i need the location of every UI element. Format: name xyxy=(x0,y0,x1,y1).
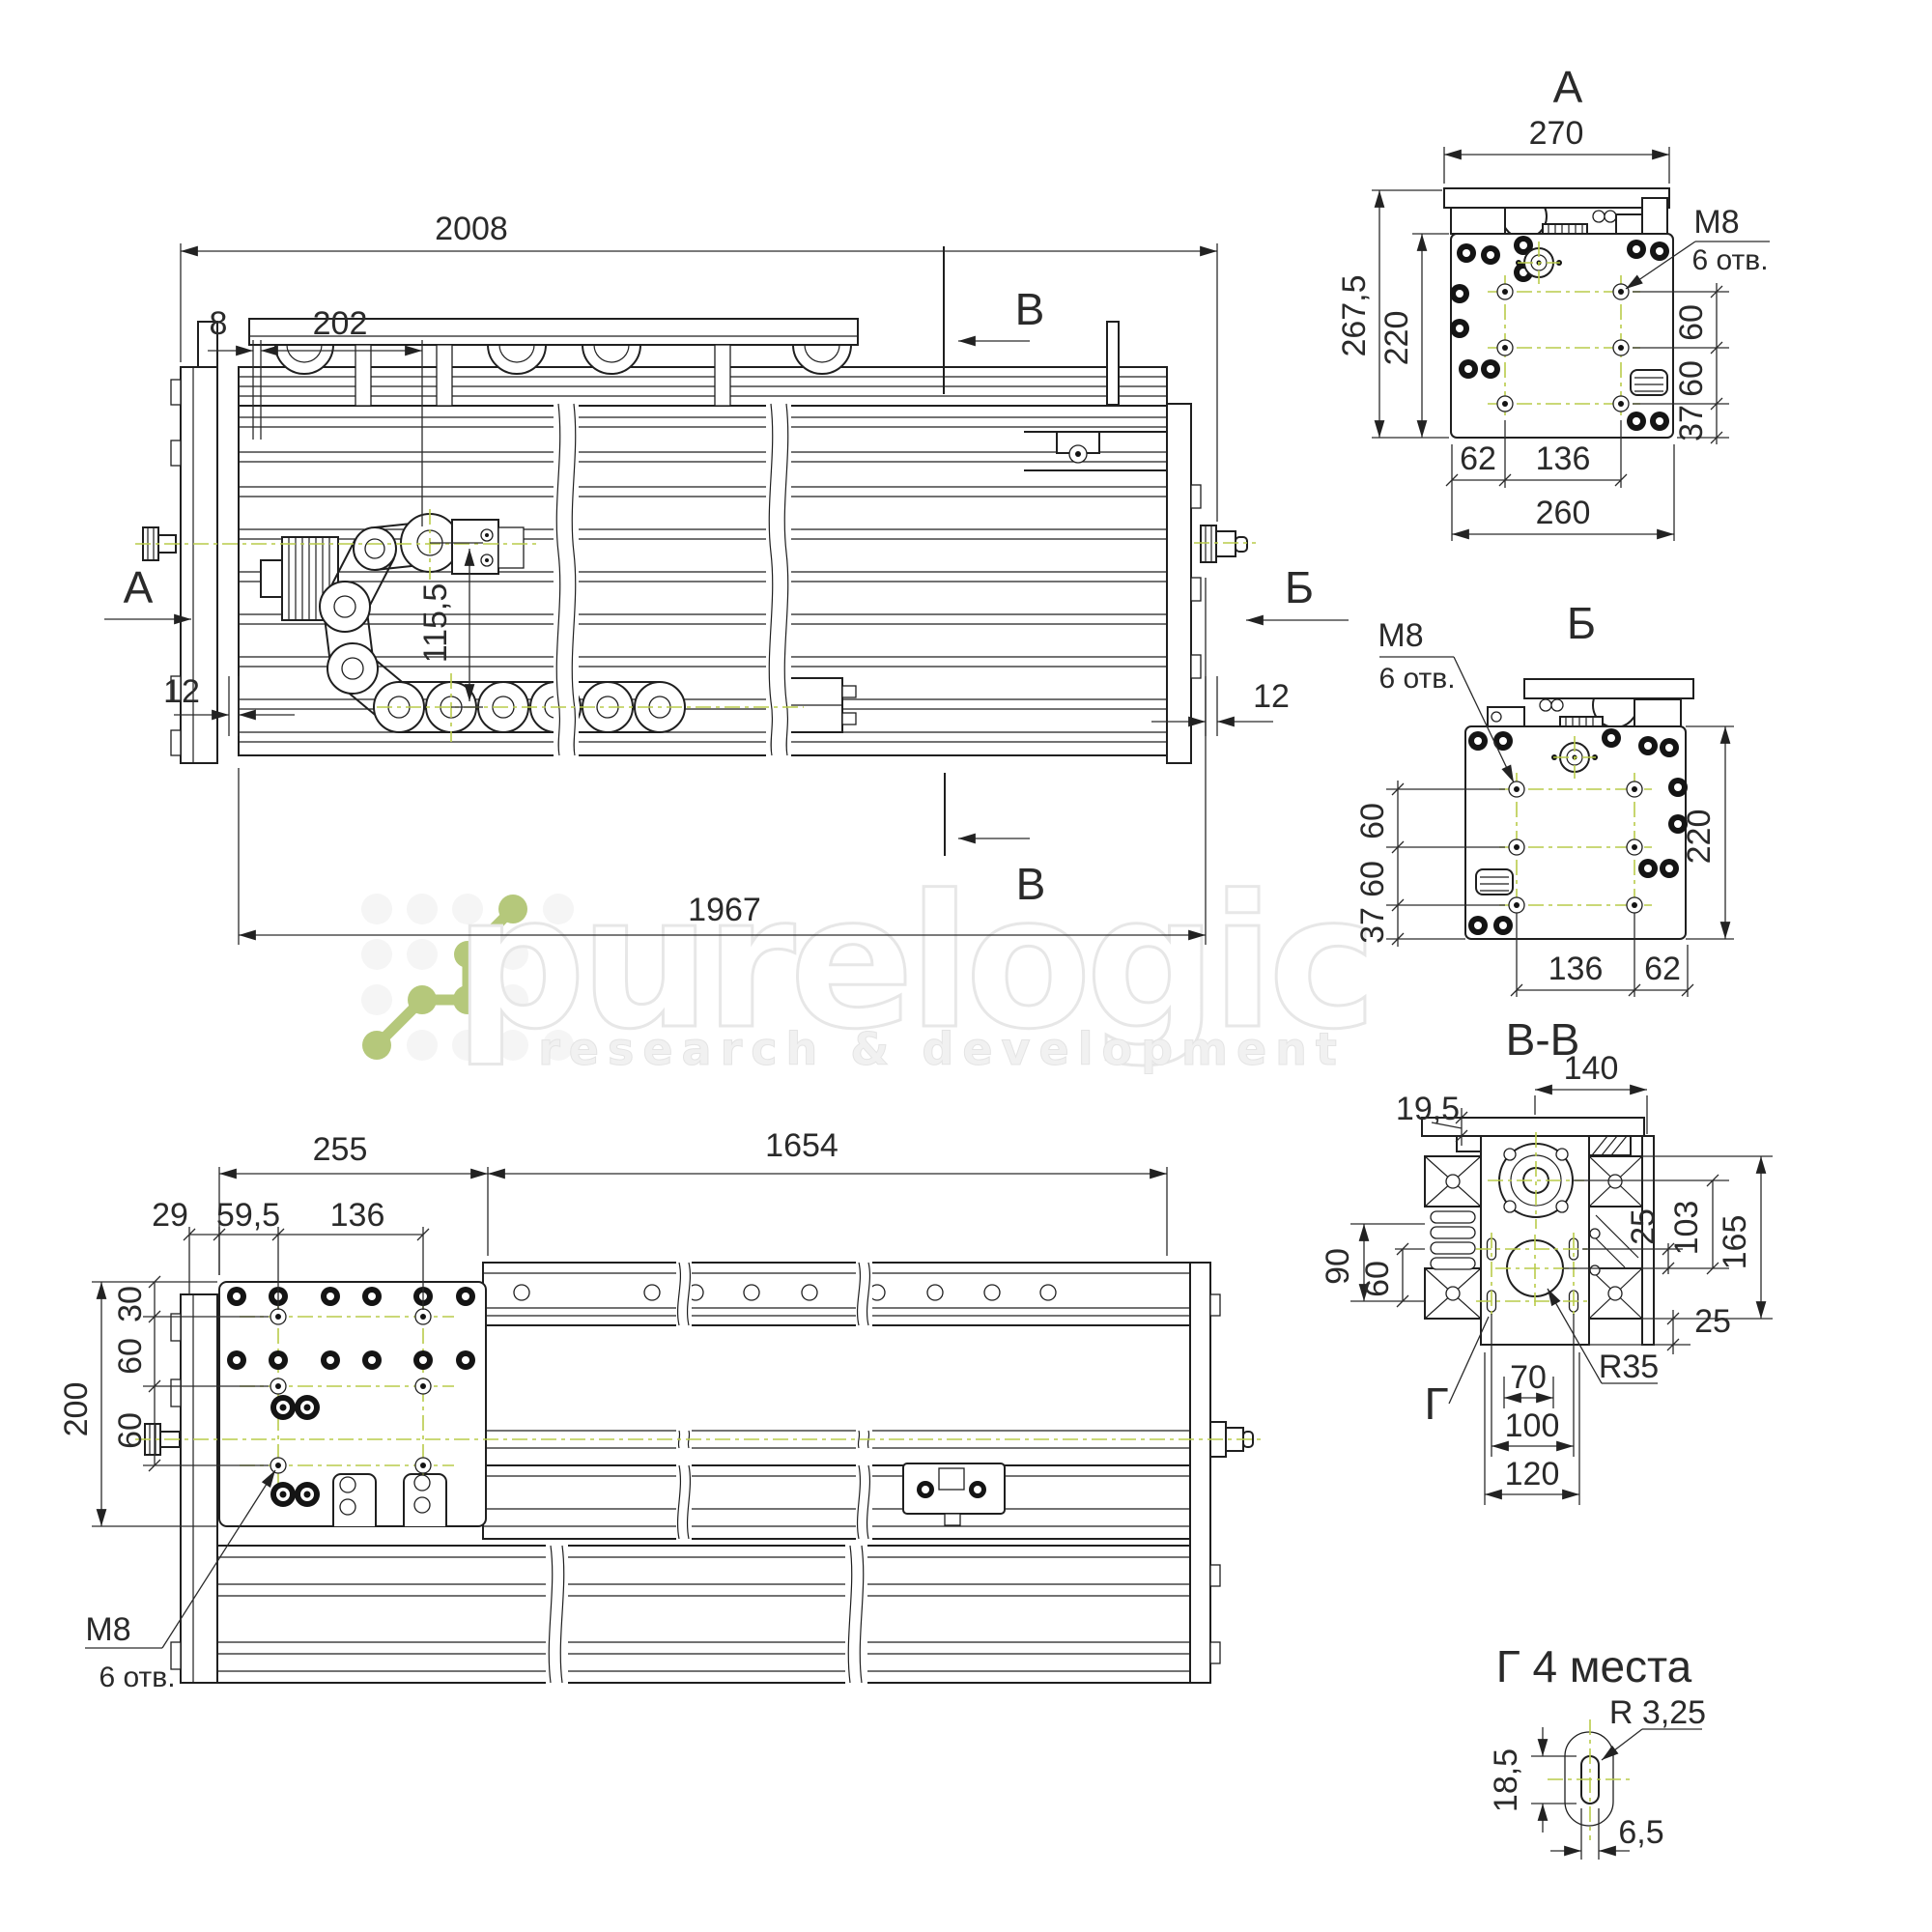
left-extrusion-section xyxy=(1425,1156,1481,1319)
dim-r35: R35 xyxy=(1599,1349,1659,1385)
dim-18-5: 18,5 xyxy=(1488,1748,1524,1812)
dim-60-b2: 60 xyxy=(1354,861,1391,897)
dim-60-p1: 60 xyxy=(112,1338,149,1375)
dim-60-a1: 60 xyxy=(1673,304,1710,341)
dim-136-b: 136 xyxy=(1548,951,1604,987)
dim-165: 165 xyxy=(1717,1215,1753,1270)
label-m8-a: M8 xyxy=(1693,204,1739,241)
dim-25-lower: 25 xyxy=(1694,1303,1731,1340)
dim-202: 202 xyxy=(313,305,368,342)
dim-100: 100 xyxy=(1505,1407,1560,1444)
dim-270: 270 xyxy=(1529,115,1584,152)
cad-drawing: purelogic research & development xyxy=(0,0,1932,1932)
dim-115-5: 115,5 xyxy=(417,583,454,664)
dim-1654: 1654 xyxy=(765,1127,838,1164)
plan-right-end xyxy=(1190,1263,1253,1683)
view-b: Б M8 6 отв. 60 60 xyxy=(1354,598,1734,997)
dim-62-b: 62 xyxy=(1644,951,1681,987)
dim-30: 30 xyxy=(112,1286,149,1322)
label-otv-b: 6 отв. xyxy=(1378,663,1455,695)
dim-200: 200 xyxy=(58,1382,95,1437)
dim-260: 260 xyxy=(1536,495,1591,531)
dim-8: 8 xyxy=(210,305,228,342)
dim-60-p2: 60 xyxy=(112,1412,149,1449)
main-side-view: 2008 8 202 115,5 12 12 1967 В В А Б xyxy=(104,211,1349,945)
dim-37-a: 37 xyxy=(1673,405,1710,441)
watermark-tagline: research & development xyxy=(538,1023,1346,1075)
right-nut xyxy=(1201,526,1216,562)
dim-1967: 1967 xyxy=(688,892,761,928)
dim-2008: 2008 xyxy=(435,211,508,247)
section-vv: В-В xyxy=(1320,1014,1773,1505)
view-a: А 270 2 xyxy=(1336,62,1770,541)
dim-70: 70 xyxy=(1510,1359,1547,1396)
plan-extrusion xyxy=(217,1546,1190,1683)
dim-103: 103 xyxy=(1668,1201,1705,1256)
plate-a xyxy=(1451,234,1673,438)
label-m8-plan: M8 xyxy=(85,1611,130,1648)
dim-37-b: 37 xyxy=(1354,907,1391,944)
dim-62-a: 62 xyxy=(1460,440,1496,477)
dim-136-a: 136 xyxy=(1536,440,1591,477)
dim-6-5: 6,5 xyxy=(1618,1814,1663,1851)
dim-90: 90 xyxy=(1320,1248,1356,1285)
drawing-sheet: purelogic research & development xyxy=(0,0,1932,1932)
dim-59-5: 59,5 xyxy=(216,1197,280,1234)
dim-29: 29 xyxy=(152,1197,188,1234)
view-b-title: Б xyxy=(1567,598,1596,648)
watermark: purelogic research & development xyxy=(361,856,1372,1075)
plan-left-bracket xyxy=(145,1294,217,1683)
dim-120: 120 xyxy=(1505,1456,1560,1492)
view-a-title: А xyxy=(1553,62,1583,112)
dim-19-5: 19,5 xyxy=(1396,1091,1460,1127)
detail-g-title: Г 4 места xyxy=(1496,1641,1692,1691)
dim-60-vv: 60 xyxy=(1359,1261,1396,1297)
dim-25-upper: 25 xyxy=(1625,1208,1662,1245)
dim-60-b1: 60 xyxy=(1354,803,1391,839)
dim-12-right: 12 xyxy=(1253,678,1290,715)
plan-view: 255 1654 29 59,5 136 30 60 60 200 M8 6 о… xyxy=(58,1127,1261,1693)
view-label-a: А xyxy=(124,562,154,612)
dim-136-plan: 136 xyxy=(330,1197,385,1234)
view-label-b: Б xyxy=(1285,562,1314,612)
detail-g-label: Г xyxy=(1425,1378,1449,1429)
dim-r3-25: R 3,25 xyxy=(1609,1694,1706,1731)
label-m8-b: M8 xyxy=(1378,617,1423,654)
dim-60-a2: 60 xyxy=(1673,360,1710,397)
dim-140: 140 xyxy=(1564,1050,1619,1087)
dim-12-left: 12 xyxy=(163,673,200,710)
dim-220-a: 220 xyxy=(1378,311,1415,366)
dim-267-5: 267,5 xyxy=(1336,274,1373,356)
label-otv-a: 6 отв. xyxy=(1691,244,1768,276)
section-label-v-bottom: В xyxy=(1016,859,1046,909)
label-otv-plan: 6 отв. xyxy=(99,1662,175,1693)
section-label-v-top: В xyxy=(1015,284,1045,334)
dim-255: 255 xyxy=(313,1131,368,1168)
dim-220-b: 220 xyxy=(1681,810,1718,865)
detail-g: Г 4 места R 3,25 18,5 6,5 xyxy=(1488,1641,1706,1860)
